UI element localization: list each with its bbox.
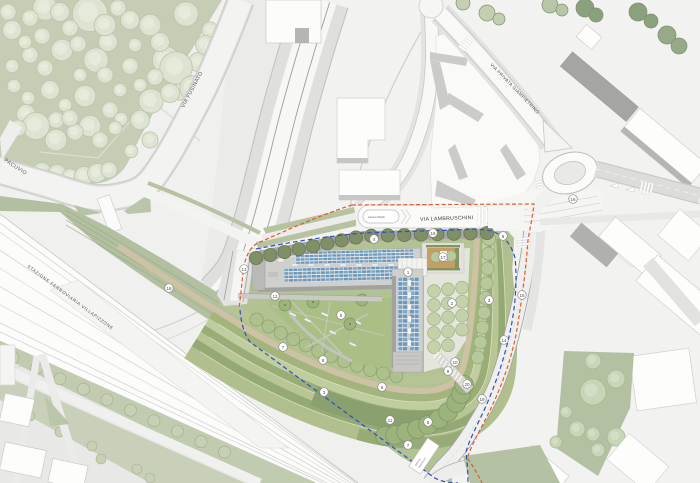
svg-text:14: 14 <box>501 338 507 343</box>
svg-text:13: 13 <box>241 267 247 272</box>
svg-text:10: 10 <box>452 360 458 365</box>
svg-text:8: 8 <box>427 420 430 425</box>
svg-text:12: 12 <box>272 294 278 299</box>
svg-text:11: 11 <box>388 418 393 423</box>
svg-text:6: 6 <box>381 385 384 390</box>
svg-text:1: 1 <box>407 270 410 275</box>
svg-text:20: 20 <box>464 382 470 387</box>
svg-text:16: 16 <box>430 231 436 236</box>
svg-text:stazione BikeMi: stazione BikeMi <box>368 216 385 219</box>
svg-text:5: 5 <box>340 313 343 318</box>
svg-text:3: 3 <box>323 390 326 395</box>
svg-text:8: 8 <box>322 358 325 363</box>
svg-text:7: 7 <box>407 443 410 448</box>
svg-text:3: 3 <box>488 298 491 303</box>
svg-text:16: 16 <box>570 197 576 202</box>
svg-text:9: 9 <box>447 369 450 374</box>
svg-text:17: 17 <box>440 255 446 260</box>
svg-text:4: 4 <box>373 237 376 242</box>
svg-text:15: 15 <box>519 293 525 298</box>
svg-text:9: 9 <box>502 234 505 239</box>
svg-text:7: 7 <box>282 345 285 350</box>
svg-text:19: 19 <box>479 397 485 402</box>
svg-text:18: 18 <box>166 286 172 291</box>
svg-text:2: 2 <box>451 301 454 306</box>
